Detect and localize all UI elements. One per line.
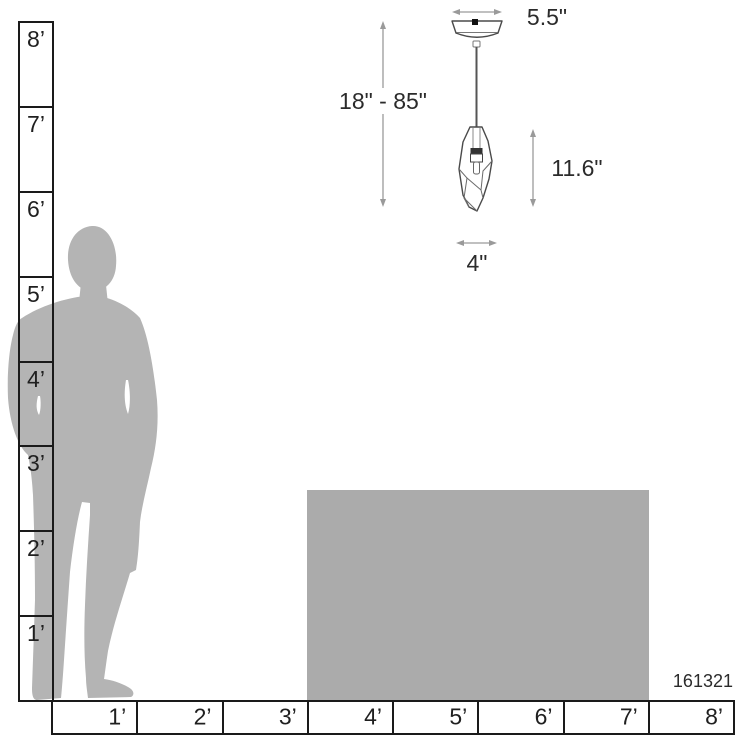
canopy-width-label: 5.5"	[517, 4, 577, 30]
canopy-mount-dot	[472, 19, 478, 25]
drop-range-label: 18" - 85"	[333, 88, 433, 114]
shade-height-label: 11.6"	[545, 155, 609, 181]
shade-width-arrow	[456, 240, 497, 246]
drop-range-arrow	[380, 21, 386, 207]
canopy-bottom-curve	[456, 33, 498, 37]
cord-grip	[473, 41, 480, 47]
pendant-scale-diagram: 8’ 7’ 6’ 5’ 4’ 3’ 2’ 1’ 1’ 2’ 3’ 4’ 5’ 6…	[0, 0, 755, 755]
shade-height-arrow	[530, 129, 536, 207]
socket-body	[471, 148, 483, 154]
canopy-width-arrow	[452, 9, 502, 15]
product-code: 161321	[633, 671, 733, 692]
shade-width-label: 4"	[447, 250, 507, 276]
